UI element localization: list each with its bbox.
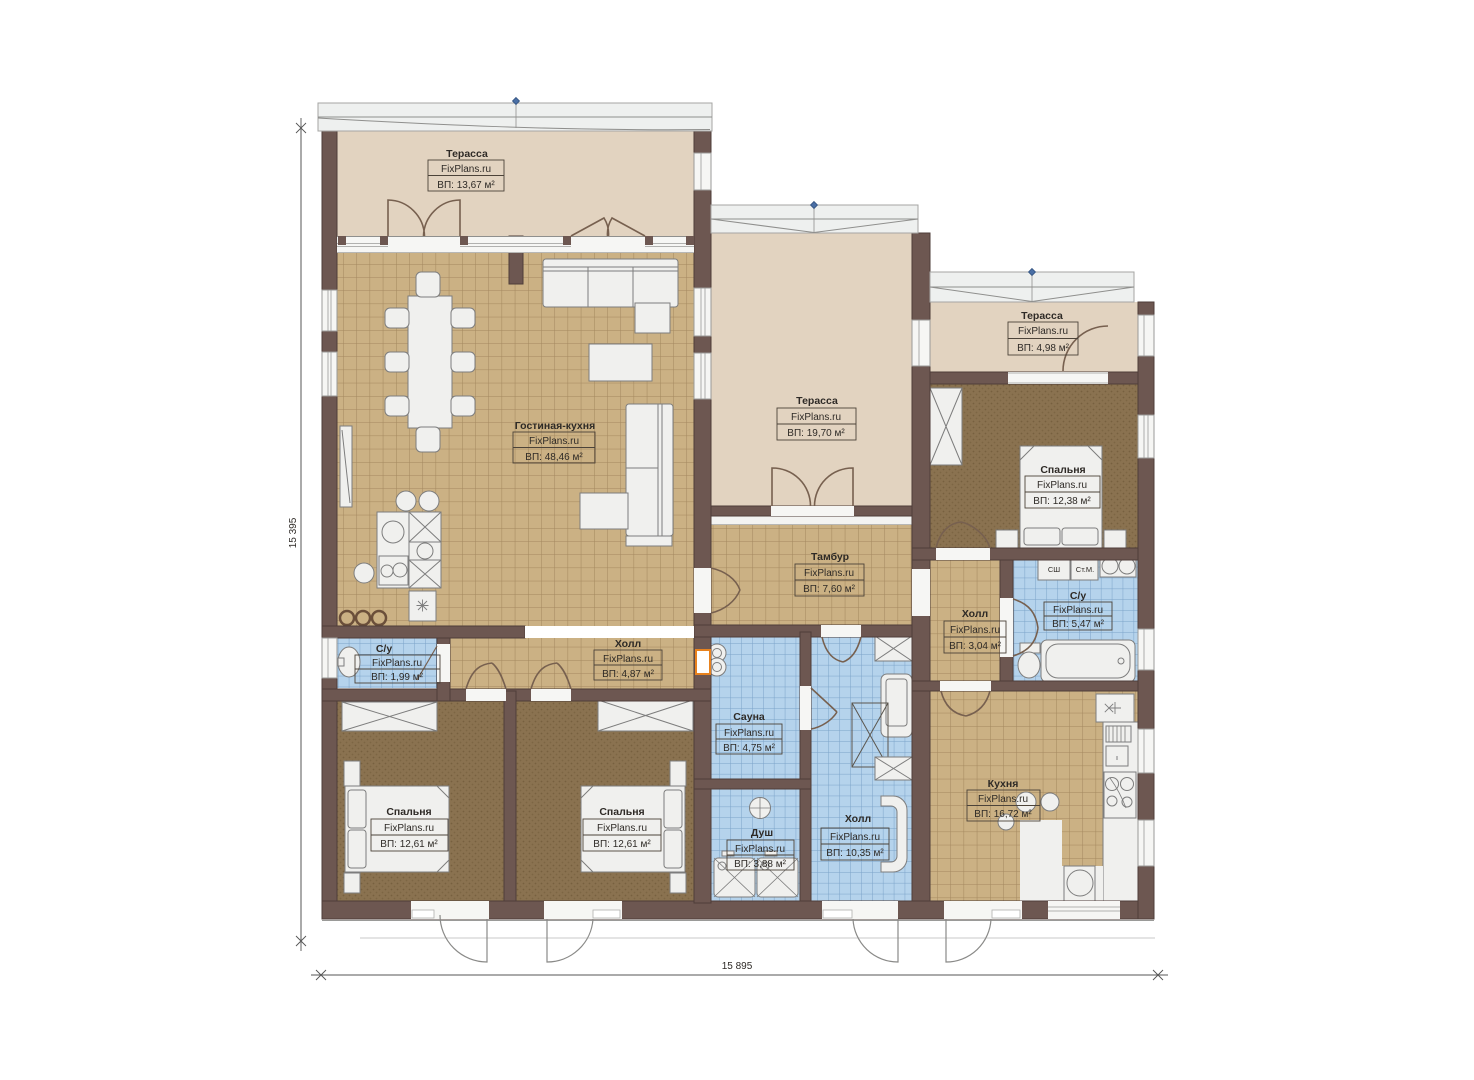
svg-text:Ст.М.: Ст.М. <box>1076 565 1094 574</box>
svg-text:Холл: Холл <box>845 813 871 825</box>
svg-text:ВП: 13,67 м²: ВП: 13,67 м² <box>437 180 495 191</box>
svg-text:СШ: СШ <box>1048 565 1060 574</box>
svg-text:Сауна: Сауна <box>733 711 765 723</box>
svg-text:FixPlans.ru: FixPlans.ru <box>1037 480 1087 491</box>
svg-text:ВП: 5,47 м²: ВП: 5,47 м² <box>1052 619 1105 630</box>
svg-text:FixPlans.ru: FixPlans.ru <box>1018 326 1068 337</box>
svg-text:FixPlans.ru: FixPlans.ru <box>978 794 1028 805</box>
svg-text:ВП: 12,61 м²: ВП: 12,61 м² <box>593 839 651 850</box>
svg-text:FixPlans.ru: FixPlans.ru <box>830 832 880 843</box>
svg-text:Холл: Холл <box>962 608 988 620</box>
svg-text:FixPlans.ru: FixPlans.ru <box>791 412 841 423</box>
svg-text:FixPlans.ru: FixPlans.ru <box>950 625 1000 636</box>
svg-text:С/у: С/у <box>376 643 393 655</box>
svg-text:Терасса: Терасса <box>446 148 488 160</box>
svg-text:С/у: С/у <box>1070 590 1087 602</box>
svg-text:Кухня: Кухня <box>988 778 1019 790</box>
svg-text:ВП: 4,98 м²: ВП: 4,98 м² <box>1017 343 1070 354</box>
svg-text:Терасса: Терасса <box>796 395 838 407</box>
svg-text:FixPlans.ru: FixPlans.ru <box>735 844 785 855</box>
svg-text:FixPlans.ru: FixPlans.ru <box>372 658 422 669</box>
svg-text:FixPlans.ru: FixPlans.ru <box>529 436 579 447</box>
svg-text:Тамбур: Тамбур <box>811 551 849 563</box>
svg-text:ВП: 48,46 м²: ВП: 48,46 м² <box>525 452 583 463</box>
svg-text:Спальня: Спальня <box>386 806 431 818</box>
svg-text:Холл: Холл <box>615 638 641 650</box>
svg-text:ВП: 3,04 м²: ВП: 3,04 м² <box>949 641 1002 652</box>
svg-text:FixPlans.ru: FixPlans.ru <box>724 728 774 739</box>
svg-text:FixPlans.ru: FixPlans.ru <box>441 164 491 175</box>
svg-text:FixPlans.ru: FixPlans.ru <box>804 568 854 579</box>
svg-text:ВП: 1,99 м²: ВП: 1,99 м² <box>371 672 424 683</box>
svg-text:FixPlans.ru: FixPlans.ru <box>603 654 653 665</box>
svg-text:FixPlans.ru: FixPlans.ru <box>1053 605 1103 616</box>
svg-text:ВП: 12,61 м²: ВП: 12,61 м² <box>380 839 438 850</box>
svg-text:ВП: 16,72 м²: ВП: 16,72 м² <box>974 809 1032 820</box>
svg-text:ВП: 3,88 м²: ВП: 3,88 м² <box>734 859 787 870</box>
svg-text:FixPlans.ru: FixPlans.ru <box>597 823 647 834</box>
svg-text:ВП: 19,70 м²: ВП: 19,70 м² <box>787 428 845 439</box>
svg-text:15 895: 15 895 <box>722 961 753 972</box>
svg-text:ВП: 10,35 м²: ВП: 10,35 м² <box>826 848 884 859</box>
svg-text:Спальня: Спальня <box>599 806 644 818</box>
svg-text:15 395: 15 395 <box>288 517 299 548</box>
svg-text:Душ: Душ <box>751 827 773 839</box>
svg-text:ВП: 7,60 м²: ВП: 7,60 м² <box>803 584 856 595</box>
svg-text:Гостиная-кухня: Гостиная-кухня <box>515 420 595 432</box>
svg-text:ВП: 4,75 м²: ВП: 4,75 м² <box>723 743 776 754</box>
svg-text:ВП: 12,38 м²: ВП: 12,38 м² <box>1033 496 1091 507</box>
svg-text:Терасса: Терасса <box>1021 310 1063 322</box>
svg-text:Спальня: Спальня <box>1040 464 1085 476</box>
svg-text:ВП: 4,87 м²: ВП: 4,87 м² <box>602 669 655 680</box>
svg-text:FixPlans.ru: FixPlans.ru <box>384 823 434 834</box>
